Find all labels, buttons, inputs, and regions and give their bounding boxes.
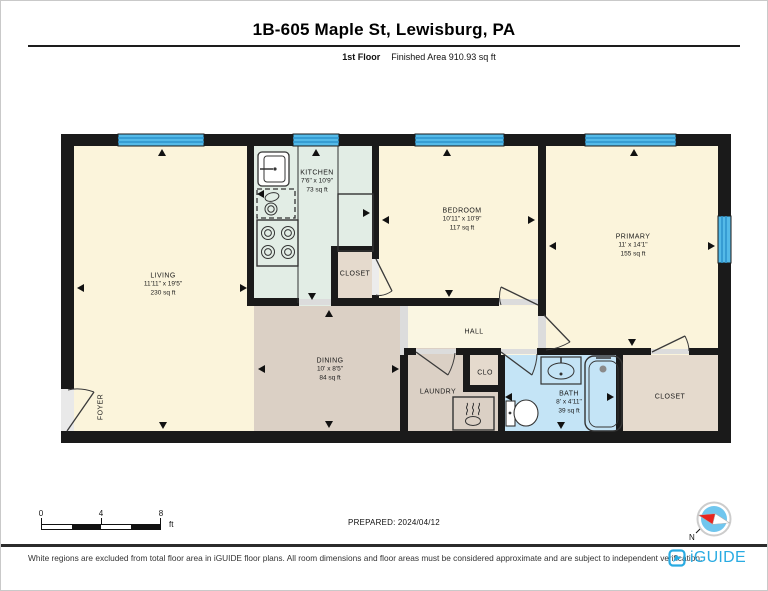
room-name: HALL: [464, 327, 483, 336]
wall-closet-bottom: [331, 298, 379, 306]
wall-bedroom-bottom: [379, 298, 499, 306]
scale-segment: [42, 525, 72, 529]
room-dims: 8' x 4'11": [556, 399, 582, 408]
footer-divider: [1, 544, 767, 547]
room-name: LIVING: [144, 272, 182, 281]
room-dims: 10'11" x 10'9": [443, 216, 482, 225]
room-dims: 7'6" x 10'9": [300, 178, 334, 187]
room-area: 73 sq ft: [300, 187, 334, 196]
floor-plan-page: 1B-605 Maple St, Lewisburg, PA 1st Floor…: [0, 0, 768, 591]
room-area: 230 sq ft: [144, 290, 182, 299]
threshold-kitchen-dining: [299, 299, 331, 305]
iguide-logo-icon: [668, 549, 686, 567]
wall-closet-left: [331, 246, 338, 303]
wall-hall-bottom-1: [404, 348, 416, 355]
room-name: CLOSET: [340, 269, 370, 278]
wall-kitchen-bottom: [247, 298, 299, 306]
room-area: 117 sq ft: [443, 225, 482, 234]
iguide-logo: iGUIDE: [668, 549, 746, 567]
wall-bedroom-primary: [538, 146, 546, 316]
scale-segment: [101, 525, 131, 529]
room-dims: 11'11" x 19'5": [144, 281, 182, 290]
room-area: 84 sq ft: [317, 375, 344, 384]
scale-bar: [41, 524, 161, 530]
scale-tick-label-8: 8: [159, 509, 163, 518]
room-name: PRIMARY: [616, 233, 651, 242]
window-icon: [415, 134, 504, 146]
wall-living-kitchen: [247, 146, 254, 306]
room-label-living: LIVING 11'11" x 19'5" 230 sq ft: [144, 272, 182, 299]
compass-icon: N: [687, 497, 737, 545]
room-dims: 11' x 14'1": [616, 242, 651, 251]
room-name: DINING: [317, 357, 344, 366]
room-label-clo: CLO: [477, 368, 493, 377]
wall-bath-left: [498, 355, 505, 431]
scale-segment: [72, 525, 102, 529]
room-name: KITCHEN: [300, 169, 334, 178]
room-name: FOYER: [96, 394, 105, 420]
floor-plan-drawing: [1, 1, 768, 591]
scale-unit-label: ft: [169, 520, 173, 529]
room-label-dining: DINING 10' x 8'5" 84 sq ft: [317, 357, 344, 384]
room-label-hall: HALL: [464, 327, 483, 336]
wall-outer-bottom: [61, 431, 731, 443]
prepared-date-label: PREPARED: 2024/04/12: [348, 518, 440, 527]
threshold-laundry-door: [416, 349, 456, 354]
wall-outer-right: [718, 134, 731, 443]
room-label-closet-kitchen: CLOSET: [340, 269, 370, 278]
window-icon: [585, 134, 676, 146]
window-icon: [118, 134, 204, 146]
wall-closet-primary-top: [689, 348, 718, 355]
room-area: 39 sq ft: [556, 408, 582, 417]
room-area: 155 sq ft: [616, 251, 651, 260]
compass-north-label: N: [689, 533, 695, 542]
window-icon: [718, 216, 731, 263]
wall-dining-laundry: [400, 355, 408, 431]
threshold-dining-hall: [400, 306, 408, 355]
room-label-bath: BATH 8' x 4'11" 39 sq ft: [556, 390, 582, 417]
room-dims: 10' x 8'5": [317, 366, 344, 375]
threshold-bath-door: [501, 349, 537, 354]
room-label-foyer: FOYER: [96, 394, 105, 420]
kitchen-sink-icon: [258, 152, 289, 186]
room-name: BEDROOM: [443, 207, 482, 216]
threshold-kitchen-closet-door: [372, 259, 379, 295]
room-name: LAUNDRY: [420, 387, 456, 396]
scale-segment: [131, 525, 161, 529]
footer-disclaimer: White regions are excluded from total fl…: [28, 553, 702, 563]
scale-tick-label-4: 4: [99, 509, 103, 518]
wall-outer-left: [61, 134, 74, 389]
room-name: CLOSET: [655, 392, 685, 401]
room-name: CLO: [477, 368, 493, 377]
room-label-kitchen: KITCHEN 7'6" x 10'9" 73 sq ft: [300, 169, 334, 196]
room-label-primary: PRIMARY 11' x 14'1" 155 sq ft: [616, 233, 651, 260]
threshold-primary-door: [538, 316, 546, 349]
room-label-bedroom: BEDROOM 10'11" x 10'9" 117 sq ft: [443, 207, 482, 234]
scale-tick-label-0: 0: [39, 509, 43, 518]
room-label-laundry: LAUNDRY: [420, 387, 456, 396]
toilet-icon: [506, 400, 538, 426]
room-name: BATH: [556, 390, 582, 399]
window-icon: [293, 134, 339, 146]
iguide-logo-text: iGUIDE: [690, 549, 746, 567]
room-label-closet-primary: CLOSET: [655, 392, 685, 401]
wall-hall-bottom-2: [456, 348, 501, 355]
